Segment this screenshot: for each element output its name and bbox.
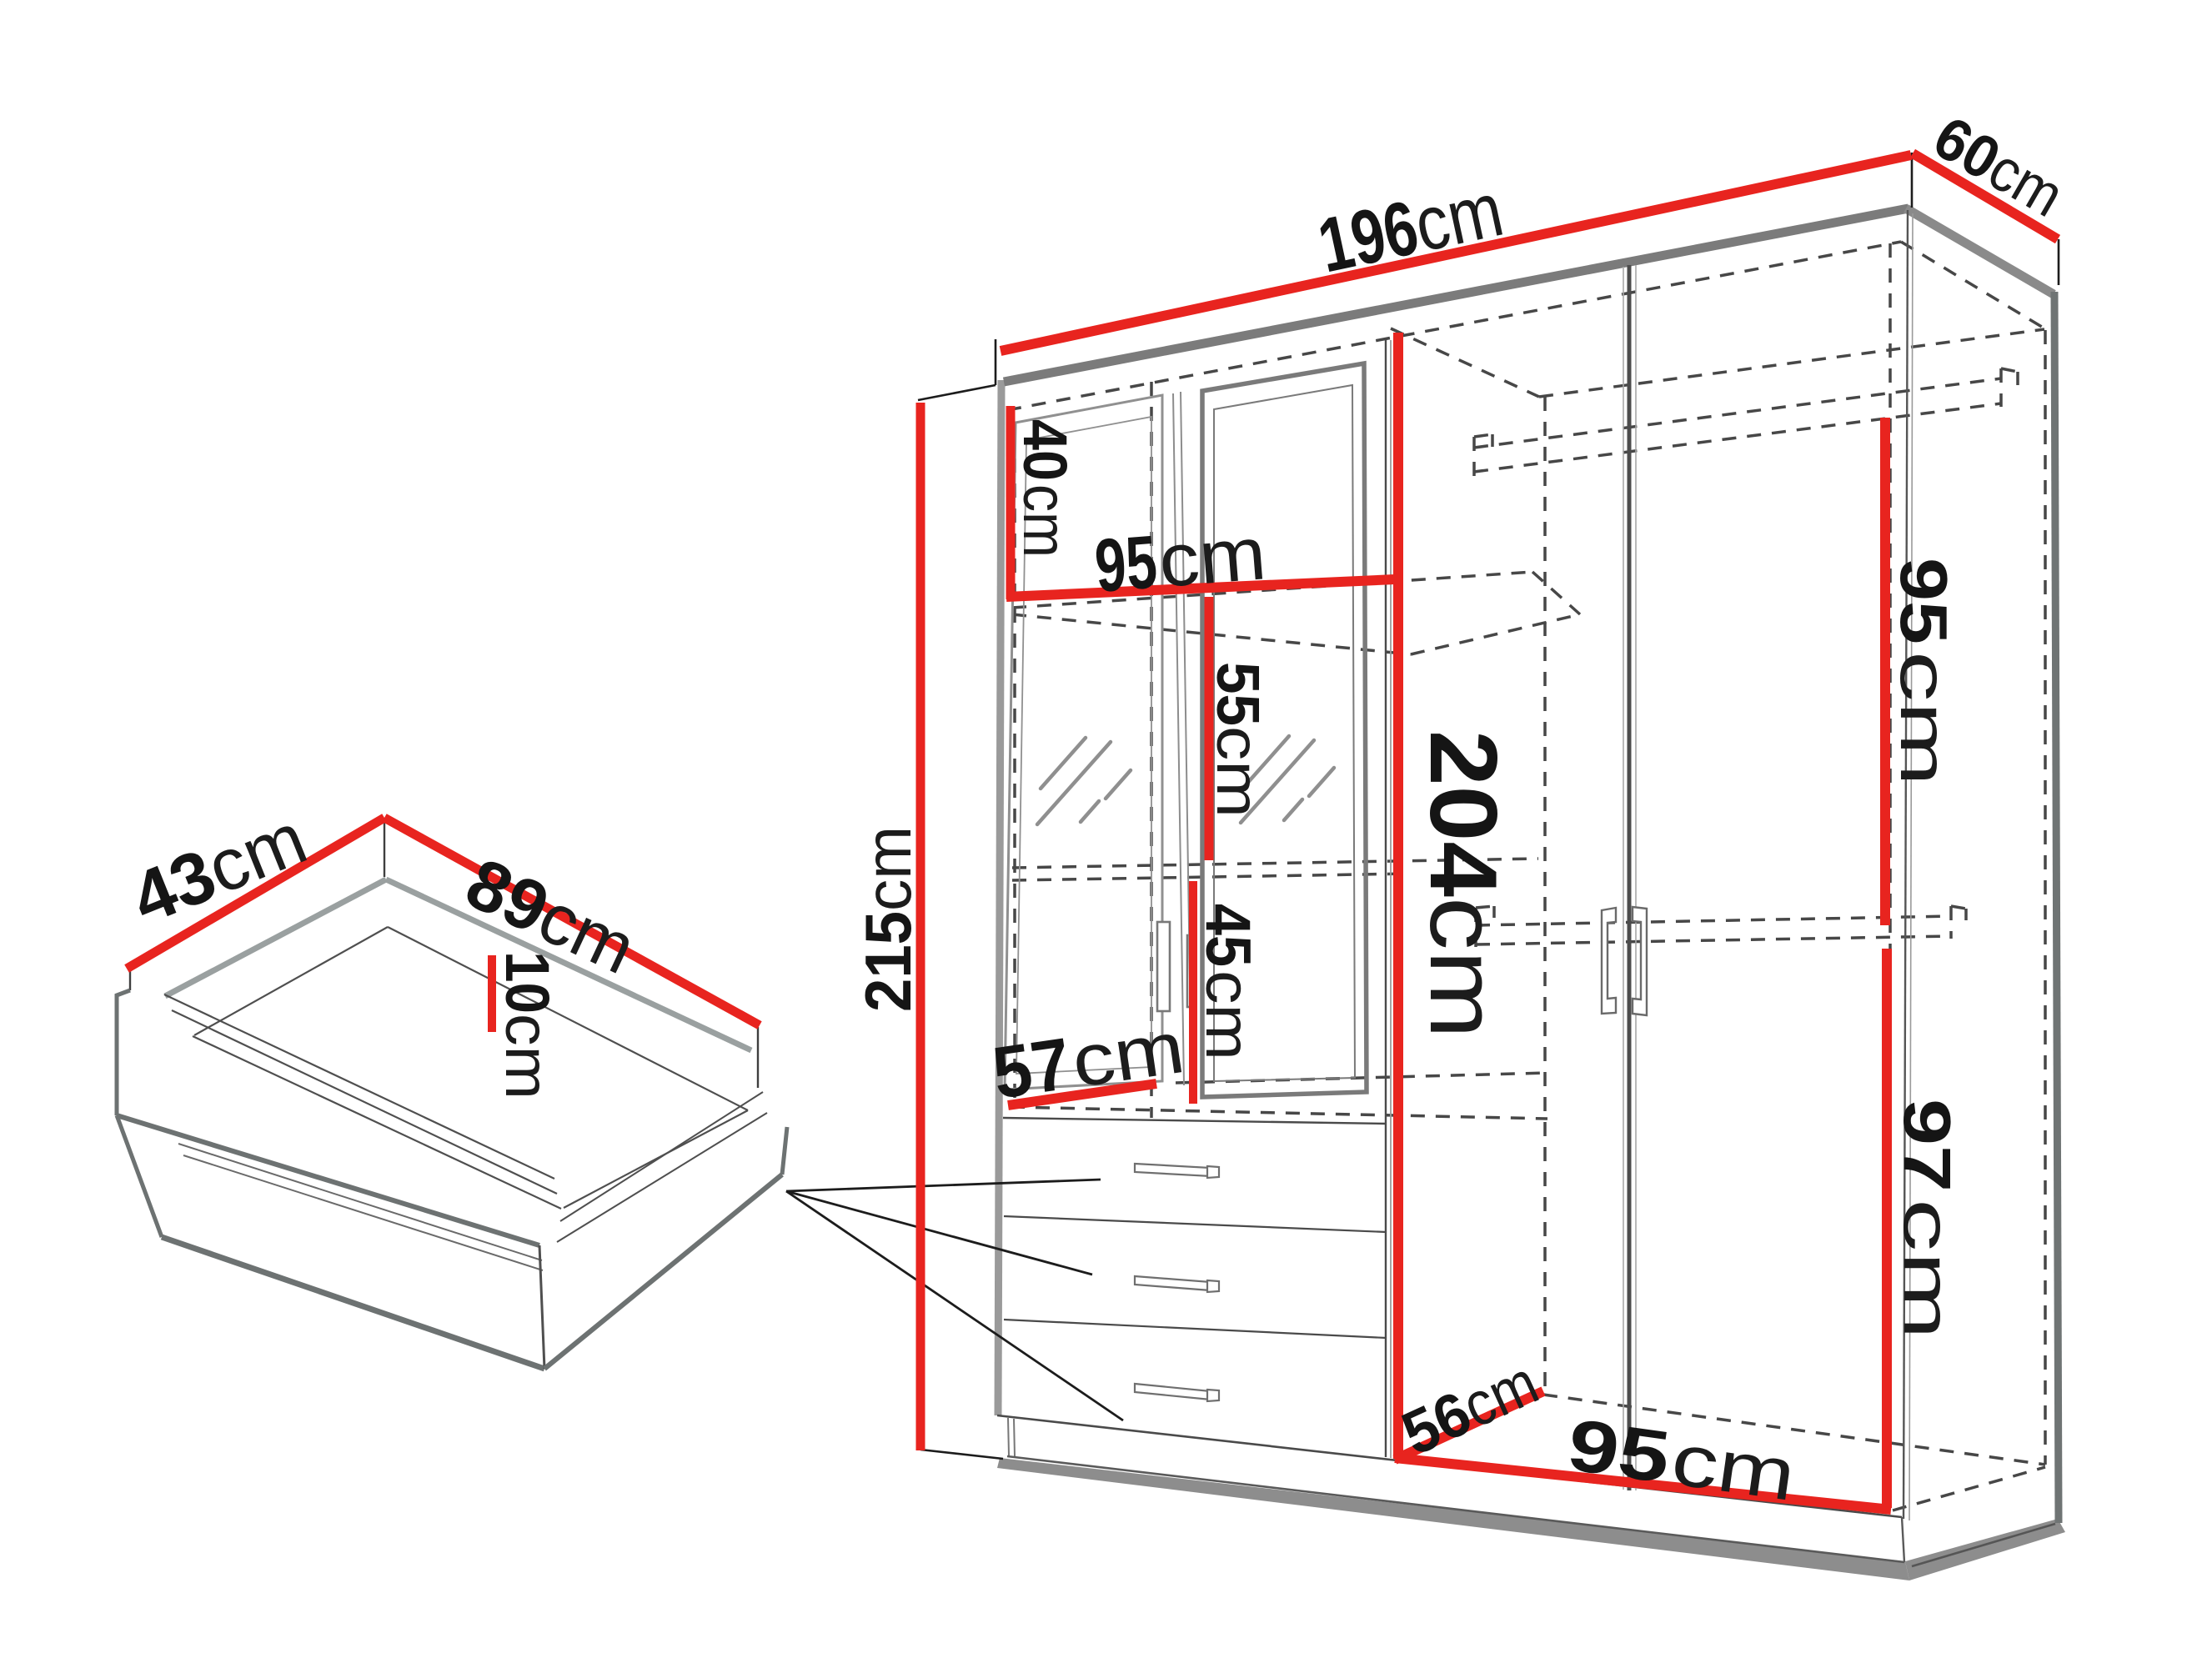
svg-text:40cm: 40cm: [1011, 419, 1080, 558]
svg-text:95cm: 95cm: [1092, 512, 1269, 609]
svg-text:55cm: 55cm: [1204, 662, 1271, 818]
svg-text:45cm: 45cm: [1192, 904, 1263, 1060]
svg-text:10cm: 10cm: [493, 951, 562, 1099]
svg-text:95cm: 95cm: [1887, 558, 1961, 786]
svg-text:215cm: 215cm: [851, 826, 925, 1012]
svg-text:97cm: 97cm: [1890, 1099, 1964, 1340]
svg-text:204cm: 204cm: [1410, 730, 1516, 1039]
